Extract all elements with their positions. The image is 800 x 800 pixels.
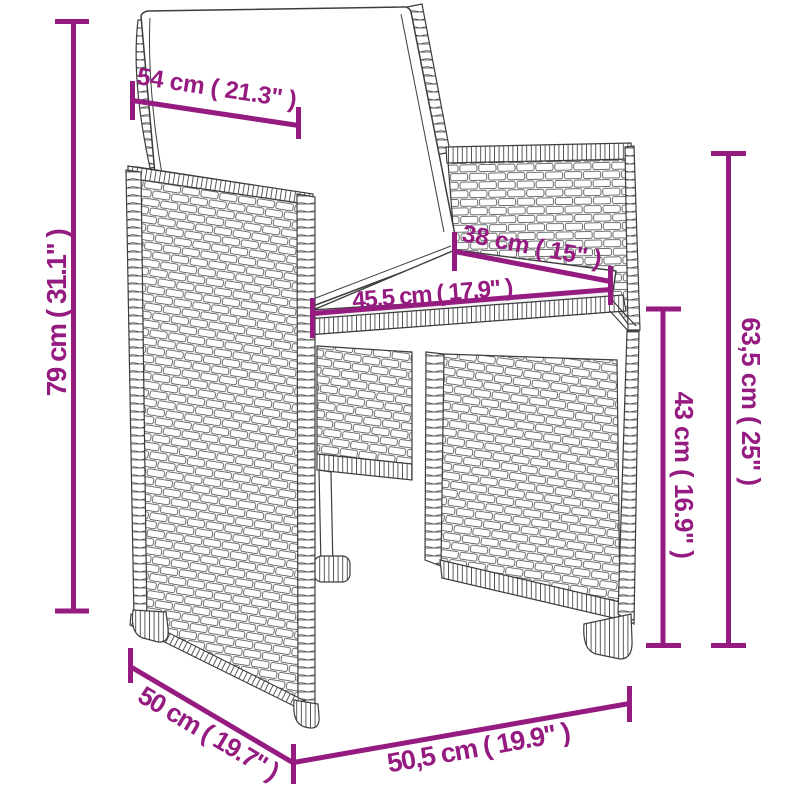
- svg-text:50,5 cm ( 19.9" ): 50,5 cm ( 19.9" ): [385, 717, 572, 779]
- svg-text:63,5 cm ( 25" ): 63,5 cm ( 25" ): [736, 317, 766, 485]
- svg-text:43 cm ( 16.9" ): 43 cm ( 16.9" ): [669, 392, 699, 559]
- svg-text:50 cm ( 19.7" ): 50 cm ( 19.7" ): [133, 680, 284, 786]
- svg-text:79 cm ( 31.1" ): 79 cm ( 31.1" ): [41, 230, 72, 397]
